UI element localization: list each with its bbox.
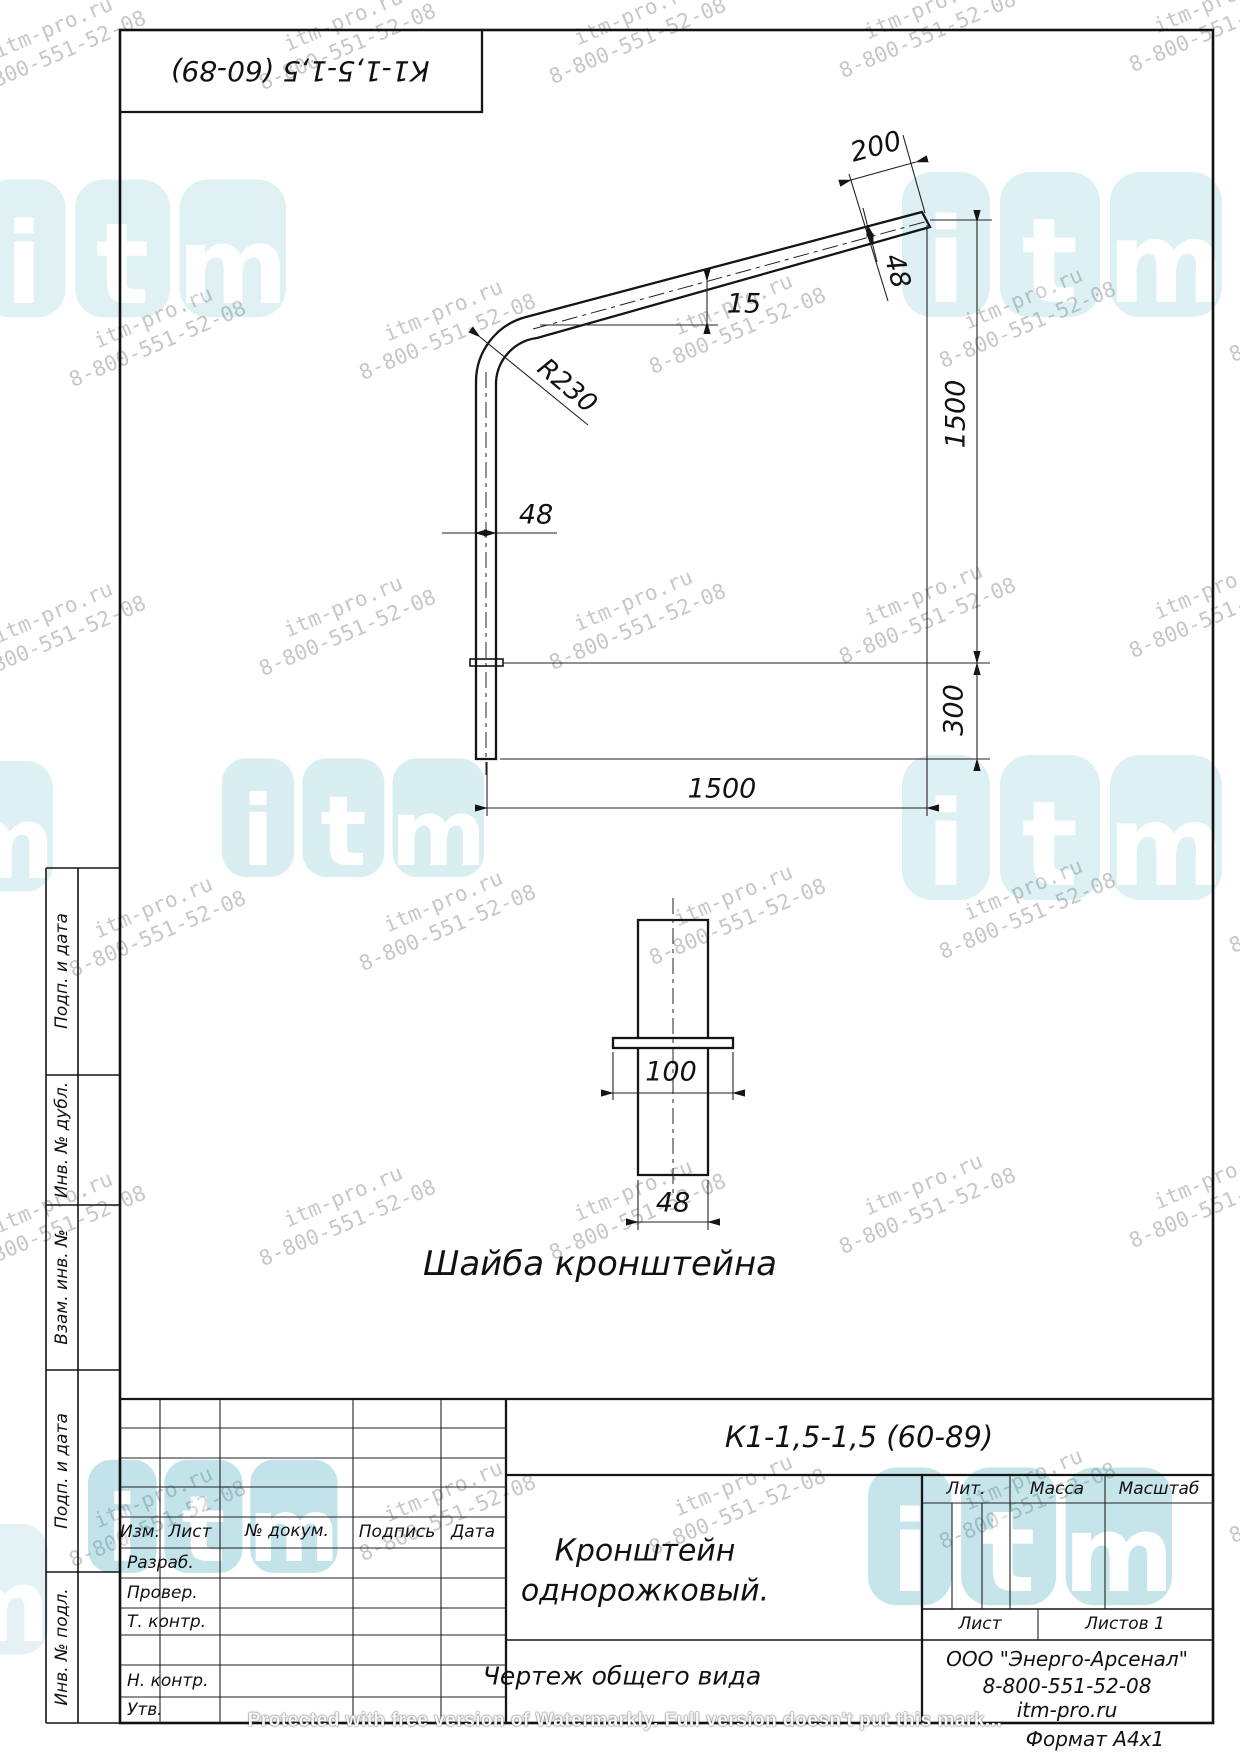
dim-1500-horizontal-label: 1500: [688, 774, 757, 805]
title-designation: К1-1,5-1,5 (60-89): [725, 1420, 993, 1454]
header-podpis: Подпись: [359, 1522, 435, 1542]
company-phone: 8-800-551-52-08: [983, 1674, 1152, 1698]
product-name-line2: однорожковый.: [521, 1574, 769, 1609]
mass-label: Масса: [1030, 1479, 1084, 1499]
sheets-label: Листов 1: [1085, 1614, 1165, 1634]
bracket-view: [442, 135, 992, 816]
sheet-frame: [120, 30, 1213, 1723]
row-utv: Утв.: [127, 1700, 163, 1720]
row-n-kontr: Н. контр.: [127, 1671, 208, 1691]
doc-type: Чертеж общего вида: [483, 1662, 761, 1691]
top-designation-text: К1-1,5-1,5 (60-89): [170, 55, 429, 88]
row-razrab: Разраб.: [127, 1553, 194, 1573]
header-n-dokum: № докум.: [245, 1521, 329, 1541]
margin-label-inv-podl: Инв. № подл.: [52, 1588, 72, 1705]
protected-notice: Protected with free version of Watermark…: [248, 1710, 1003, 1732]
dim-48-washer-label: 48: [656, 1188, 690, 1219]
washer-caption: Шайба кронштейна: [423, 1244, 777, 1284]
drawing-sheet: itm-pro.ru8-800-551-52-08itm-pro.ru8-800…: [0, 0, 1240, 1755]
dim-48-left-label: 48: [519, 500, 553, 531]
company-name: ООО "Энерго-Арсенал": [946, 1647, 1188, 1671]
row-prover: Провер.: [127, 1583, 198, 1603]
lit-label: Лит.: [946, 1479, 985, 1499]
dim-1500-vertical-label: 1500: [941, 380, 972, 449]
header-izm: Изм.: [120, 1522, 160, 1542]
margin-label-vzam-inv: Взам. инв. №: [52, 1229, 72, 1344]
format-note: Формат А4х1: [1026, 1727, 1164, 1751]
header-data: Дата: [451, 1522, 495, 1542]
margin-label-podp-data-1: Подп. и дата: [52, 913, 72, 1029]
scale-label: Масштаб: [1119, 1479, 1200, 1499]
margin-label-podp-data-2: Подп. и дата: [52, 1413, 72, 1529]
dim-300-label: 300: [939, 684, 970, 736]
margin-label-inv-dubl: Инв. № дубл.: [52, 1082, 72, 1198]
row-t-kontr: Т. контр.: [127, 1612, 206, 1632]
company-site: itm-pro.ru: [1017, 1698, 1118, 1722]
header-list: Лист: [168, 1522, 211, 1542]
sheet-label: Лист: [958, 1614, 1001, 1634]
dim-100-label: 100: [645, 1057, 697, 1088]
product-name-line1: Кронштейн: [555, 1534, 736, 1569]
angle-15-label: 15: [727, 289, 761, 320]
